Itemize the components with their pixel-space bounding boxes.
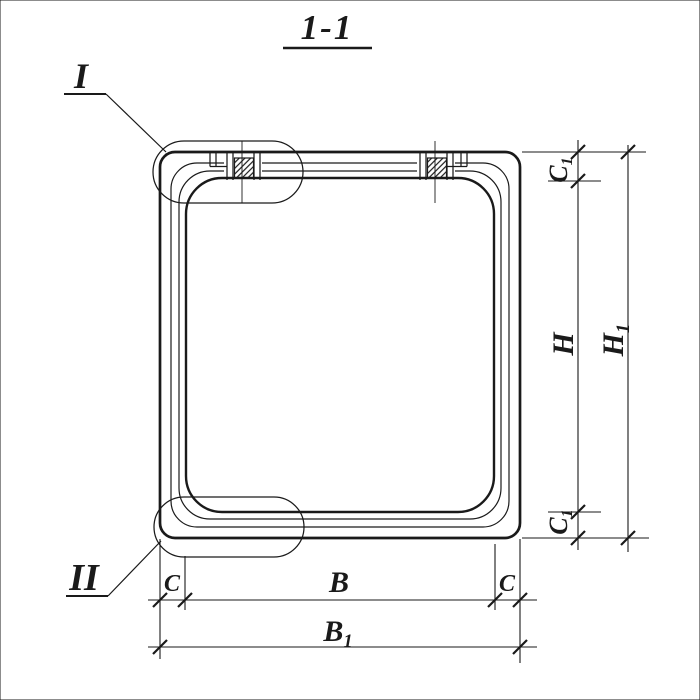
drawing-sheet: 1-1 I (0, 0, 700, 700)
dim-label-b: B (328, 566, 349, 599)
joint-key-hatch (235, 158, 254, 178)
dim-label-c-left: C (164, 571, 181, 597)
detail-callout-1-label: I (73, 56, 90, 96)
joint-key-hatch (428, 158, 447, 178)
dim-label-h: H (547, 331, 580, 357)
section-title-text: 1-1 (301, 8, 354, 47)
detail-callout-2-label: II (68, 557, 100, 599)
dim-label-c-right: C (499, 571, 516, 597)
section-drawing: 1-1 I (0, 0, 700, 700)
